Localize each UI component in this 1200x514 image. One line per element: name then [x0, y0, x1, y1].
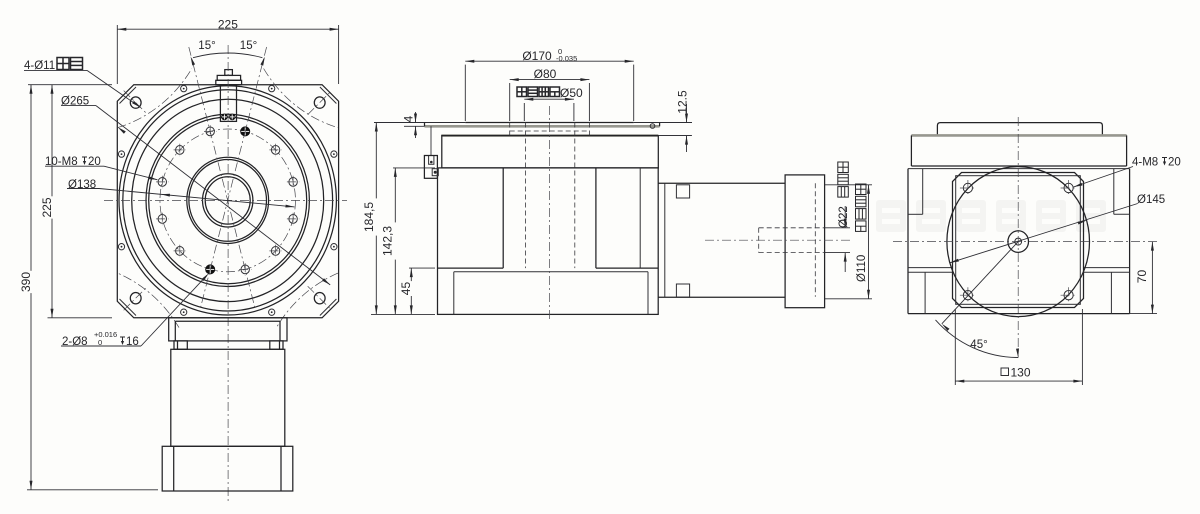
svg-text:Ø145: Ø145 [1137, 194, 1165, 206]
svg-text:4: 4 [402, 115, 416, 122]
svg-text:Ø138: Ø138 [68, 179, 96, 191]
svg-text:184,5: 184,5 [362, 202, 376, 232]
svg-text:45°: 45° [970, 339, 987, 351]
svg-text:15°: 15° [198, 40, 215, 52]
svg-text:Ø170: Ø170 [522, 49, 552, 63]
svg-text:20: 20 [1168, 157, 1181, 169]
svg-text:15°: 15° [240, 40, 257, 52]
svg-text:Ø80: Ø80 [534, 67, 557, 81]
svg-text:12.5: 12.5 [676, 90, 690, 114]
svg-text:70: 70 [1135, 270, 1149, 284]
svg-text:-0.035: -0.035 [556, 54, 577, 63]
svg-text:Ø110: Ø110 [856, 255, 868, 282]
svg-text:142,3: 142,3 [381, 226, 395, 256]
svg-text:225: 225 [218, 18, 238, 32]
svg-text:4-M8: 4-M8 [1132, 157, 1158, 169]
svg-text:Ø22: Ø22 [838, 206, 850, 228]
svg-text:390: 390 [19, 272, 33, 292]
svg-text:Ø50: Ø50 [560, 86, 583, 100]
svg-text:45: 45 [399, 282, 413, 296]
svg-text:130: 130 [1011, 366, 1031, 380]
svg-text:225: 225 [40, 197, 54, 217]
